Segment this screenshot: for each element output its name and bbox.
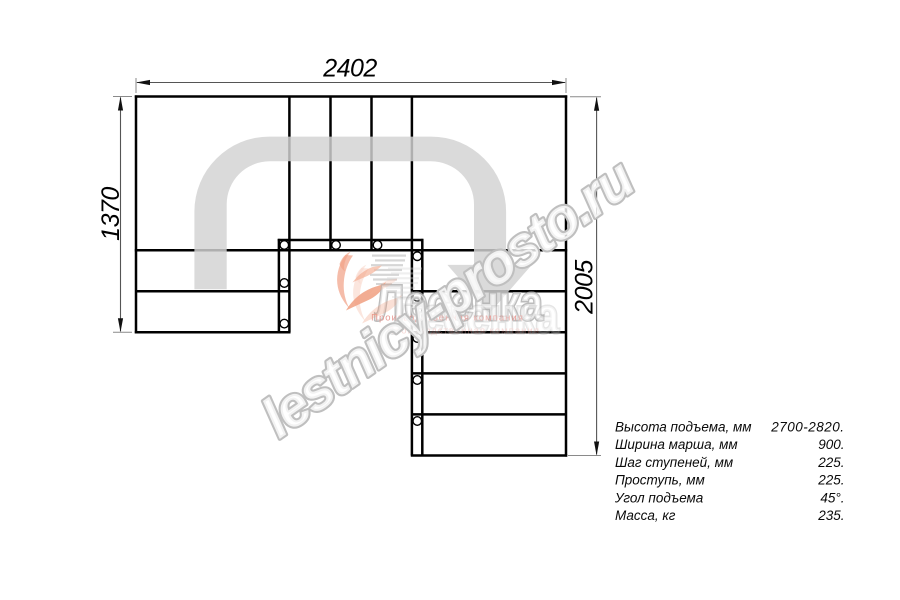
svg-text:Шаг ступеней, мм: Шаг ступеней, мм: [615, 455, 733, 470]
svg-text:45°.: 45°.: [820, 490, 844, 505]
svg-text:1370: 1370: [97, 187, 125, 241]
svg-text:Ширина марша, мм: Ширина марша, мм: [615, 437, 738, 452]
svg-text:2700-2820.: 2700-2820.: [770, 420, 844, 435]
svg-text:235.: 235.: [817, 508, 844, 523]
svg-text:2402: 2402: [322, 55, 377, 83]
svg-text:Высота подъема, мм: Высота подъема, мм: [615, 420, 751, 435]
svg-text:225.: 225.: [817, 473, 844, 488]
svg-text:2005: 2005: [571, 260, 599, 315]
svg-text:900.: 900.: [818, 437, 844, 452]
svg-text:225.: 225.: [817, 455, 844, 470]
svg-text:Проступь, мм: Проступь, мм: [615, 473, 705, 488]
svg-text:Угол подъема: Угол подъема: [614, 490, 704, 505]
svg-text:Масса, кг: Масса, кг: [615, 508, 676, 523]
